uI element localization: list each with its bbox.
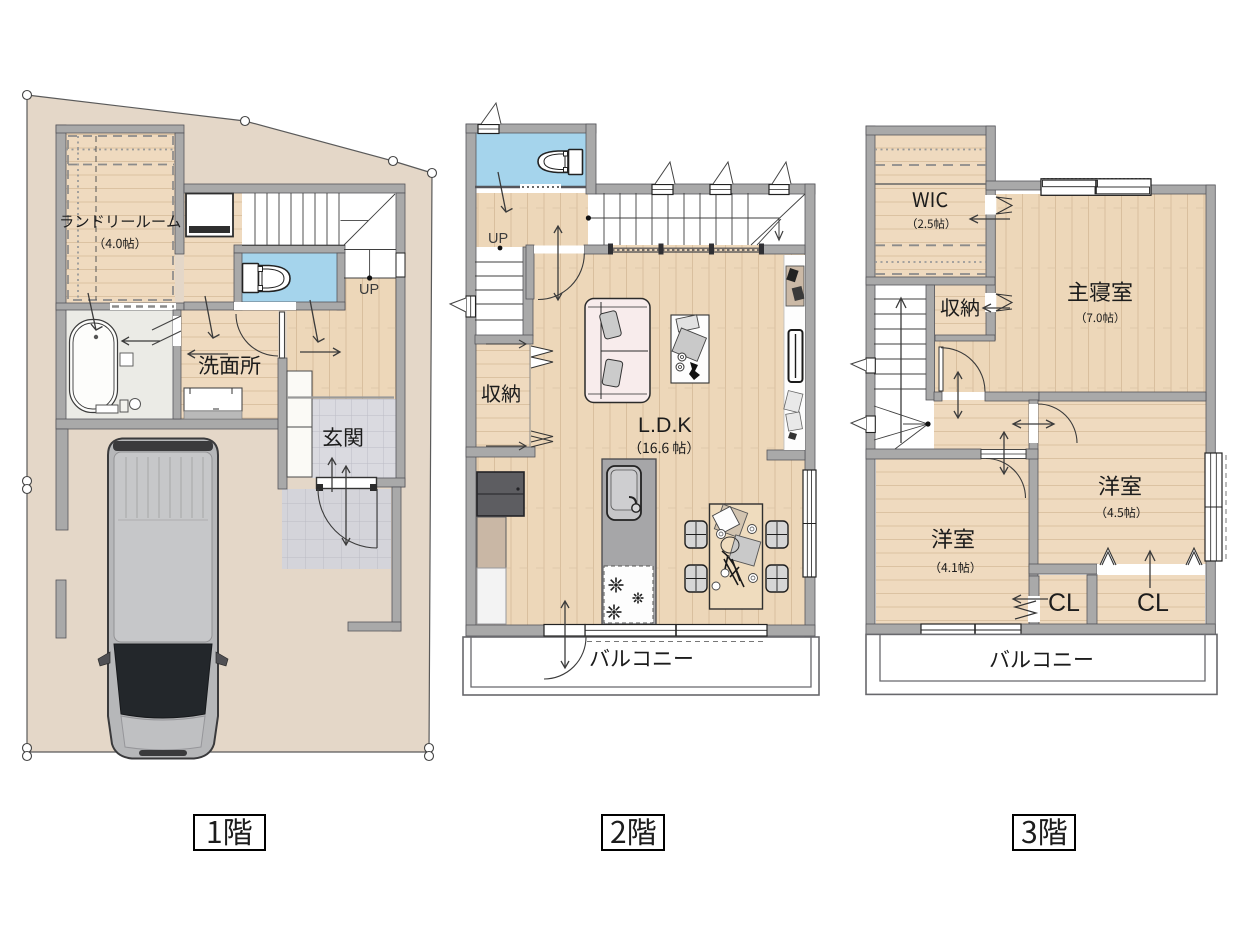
svg-text:L.D.K: L.D.K [638,413,692,437]
svg-text:UP: UP [488,231,508,247]
svg-text:CL: CL [1137,589,1169,617]
svg-text:CL: CL [1048,589,1080,617]
svg-text:UP: UP [359,282,379,298]
